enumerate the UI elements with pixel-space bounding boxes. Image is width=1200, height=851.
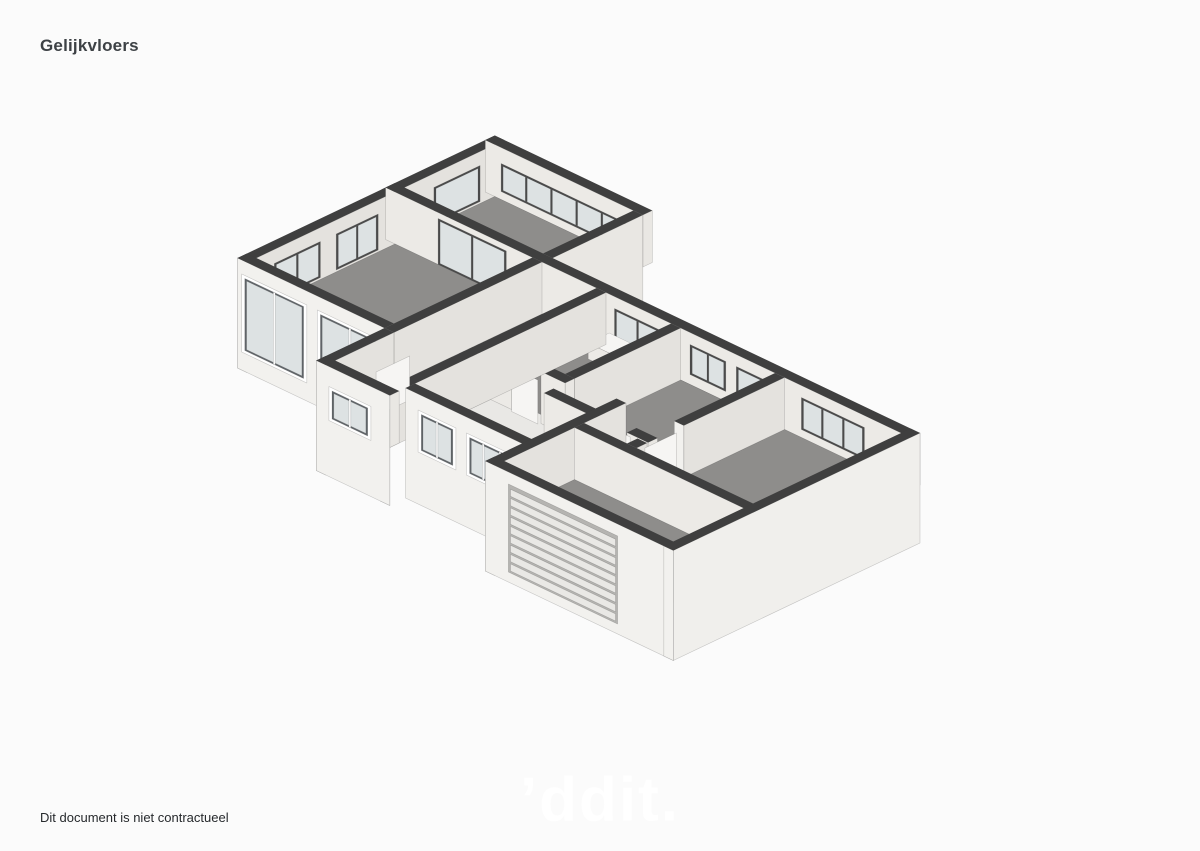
page-title: Gelijkvloers [40,36,139,56]
floorplan-geometry [238,136,921,661]
floorplan-3d-view [0,0,1200,851]
watermark-logo: ’ddit. [520,765,680,836]
disclaimer-text: Dit document is niet contractueel [40,810,229,825]
